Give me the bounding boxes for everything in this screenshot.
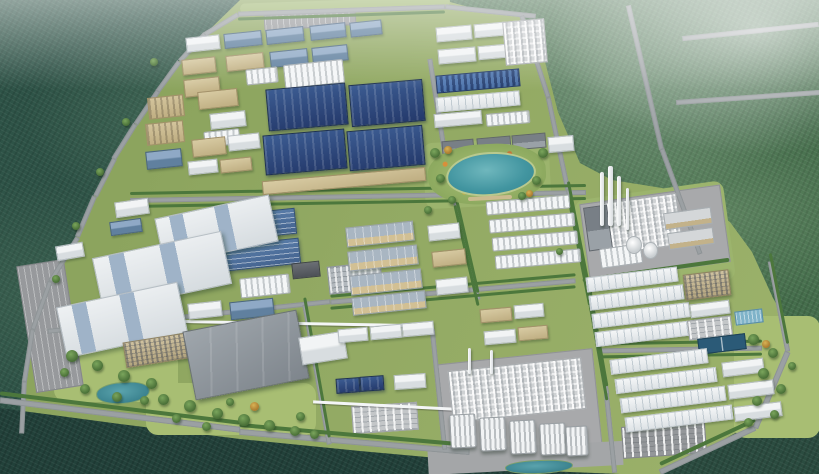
- shed-row-bc-2: [369, 324, 402, 341]
- navy-factory-grid-3: [262, 129, 347, 176]
- industrial-park-rendering: [0, 0, 819, 474]
- navy-shed-bc-1: [336, 377, 361, 394]
- tree-arc-4: [72, 222, 80, 230]
- tree-lake-orange-2: [526, 190, 533, 197]
- tree-mbc-3: [212, 408, 223, 419]
- tree-lake-5: [448, 196, 456, 204]
- factory-tl-16: [227, 132, 260, 151]
- tree-mbc-9: [296, 412, 305, 421]
- shed-west-2: [109, 218, 143, 236]
- tree-mr-5: [752, 396, 762, 406]
- tree-mbc-4: [238, 414, 250, 426]
- tank-row-top-center: [486, 110, 531, 127]
- tank-farm-row-4: [495, 248, 582, 269]
- tree-mbl-8: [60, 368, 69, 377]
- tree-mbc-7: [172, 414, 181, 423]
- silo-group-2: [479, 416, 507, 451]
- tree-mbl-3: [118, 370, 130, 382]
- tree-mr-1: [748, 334, 759, 345]
- tree-mr-8: [788, 362, 796, 370]
- tree-arc-5: [52, 275, 60, 283]
- factory-tc-3: [437, 46, 476, 64]
- factory-tl-3: [265, 26, 304, 45]
- navy-shed-bc-2: [360, 375, 385, 392]
- factory-tl-12: [197, 88, 239, 110]
- white-shed-bc: [394, 373, 427, 390]
- small-shed-center-3: [435, 276, 468, 295]
- tree-mbc-1: [158, 394, 169, 405]
- silo-plant-stack-1: [468, 348, 471, 374]
- tree-arc-3: [96, 168, 104, 176]
- silo-group-1: [449, 413, 477, 448]
- factory-tl-14: [145, 120, 185, 146]
- tank-cluster-middle: [239, 273, 291, 298]
- tree-mbc-10: [310, 430, 319, 439]
- tree-mbc-2: [184, 400, 196, 412]
- shed-mid-right-1: [479, 307, 512, 324]
- tan-factory-row-2: [347, 244, 419, 271]
- shed-mid-right-4: [517, 325, 548, 342]
- tree-mbl-1: [66, 350, 78, 362]
- navy-factory-grid-2: [348, 79, 425, 127]
- silo-group-5: [565, 425, 589, 456]
- small-white-middle: [187, 300, 222, 319]
- shed-row-bc-1: [337, 327, 368, 344]
- shed-row-bc-3: [401, 321, 434, 338]
- tree-lake-2: [436, 174, 445, 183]
- shed-parking-top: [55, 242, 85, 262]
- tree-mbc-6: [290, 426, 300, 436]
- tree-mbc-11: [226, 398, 234, 406]
- tree-campus-1: [424, 206, 432, 214]
- tree-lake-3: [538, 148, 548, 158]
- factory-tc-1: [435, 24, 472, 42]
- tree-lake-orange-1: [444, 146, 452, 154]
- solar-roof-factory: [435, 68, 520, 93]
- factory-tl-4: [309, 22, 346, 41]
- tree-mbl-5: [80, 384, 90, 394]
- factory-tl-1: [185, 34, 220, 52]
- tree-mbl-2: [92, 360, 103, 371]
- factory-tc-5: [433, 110, 482, 128]
- process-plant-top-center: [502, 18, 548, 65]
- shed-west-1: [114, 198, 150, 219]
- factory-tl-17: [145, 148, 183, 170]
- small-shed-center-1: [427, 222, 460, 241]
- factory-tl-5: [349, 19, 382, 37]
- tree-campus-2: [556, 248, 563, 255]
- tan-factory-row-1: [345, 221, 415, 248]
- cooling-tower-1: [626, 236, 642, 254]
- chimney-stack-3: [617, 176, 621, 226]
- building-east-of-lake: [547, 135, 574, 153]
- factory-tl-18: [187, 158, 218, 175]
- factory-tl-19: [219, 156, 252, 173]
- tree-mr-orange: [762, 340, 770, 348]
- tree-mbl-4: [146, 378, 157, 389]
- tree-mbl-6: [112, 392, 122, 402]
- chimney-stack-1: [600, 172, 604, 226]
- factory-tl-2: [223, 30, 262, 49]
- tree-mbc-5: [264, 420, 275, 431]
- tree-mr-7: [744, 418, 753, 427]
- office-building-right: [683, 269, 732, 300]
- tree-lake-1: [430, 148, 440, 158]
- tree-mr-4: [776, 384, 786, 394]
- factory-tc-4: [477, 44, 506, 60]
- factory-tl-11: [147, 94, 185, 120]
- factory-tl-15: [191, 136, 227, 157]
- silo-plant-stack-2: [490, 350, 493, 374]
- cooling-tower-2: [643, 242, 658, 259]
- tree-mbl-7: [140, 396, 149, 405]
- chimney-stack-2: [608, 166, 613, 226]
- shed-mid-right-2: [513, 303, 544, 320]
- tree-mr-3: [758, 368, 769, 379]
- small-shed-center-2: [431, 248, 466, 267]
- darkroof-house-middle: [291, 261, 321, 280]
- factory-tl-13: [209, 110, 246, 130]
- tree-mr-2: [768, 348, 778, 358]
- shed-mid-right-3: [483, 329, 516, 346]
- silo-group-3: [509, 419, 537, 454]
- tree-lake-6: [518, 192, 526, 200]
- navy-factory-grid-4: [346, 125, 425, 171]
- tank-farm-tl-1: [245, 66, 278, 85]
- tree-mbc-8: [202, 422, 211, 431]
- factory-tl-6: [181, 56, 216, 75]
- chimney-stack-4: [626, 188, 629, 230]
- tree-arc-2: [122, 118, 130, 126]
- tree-arc-1: [150, 58, 158, 66]
- factory-tc-2: [473, 22, 504, 39]
- navy-factory-grid-1: [265, 83, 348, 132]
- tree-lake-4: [532, 176, 541, 185]
- tree-mr-6: [770, 410, 779, 419]
- silo-group-4: [539, 422, 567, 455]
- tree-mbc-orange: [250, 402, 259, 411]
